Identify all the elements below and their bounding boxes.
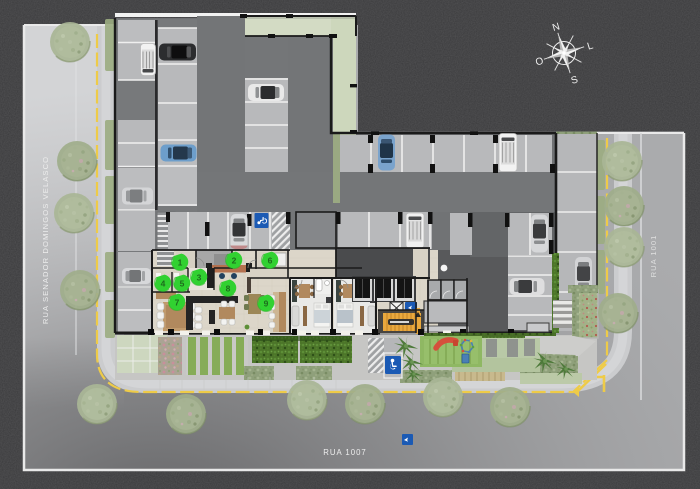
svg-text:5: 5 xyxy=(180,278,185,288)
svg-text:8: 8 xyxy=(226,283,231,293)
svg-text:6: 6 xyxy=(268,255,273,265)
svg-text:3: 3 xyxy=(197,272,202,282)
svg-text:RUA 1001: RUA 1001 xyxy=(649,235,658,278)
svg-text:RUA SENADOR DOMINGOS VELASCO: RUA SENADOR DOMINGOS VELASCO xyxy=(41,156,50,324)
svg-text:2: 2 xyxy=(232,255,237,265)
svg-text:RUA 1007: RUA 1007 xyxy=(323,448,367,457)
svg-text:4: 4 xyxy=(161,278,166,288)
svg-text:1: 1 xyxy=(178,257,183,267)
svg-text:9: 9 xyxy=(264,298,269,308)
svg-text:7: 7 xyxy=(175,297,180,307)
